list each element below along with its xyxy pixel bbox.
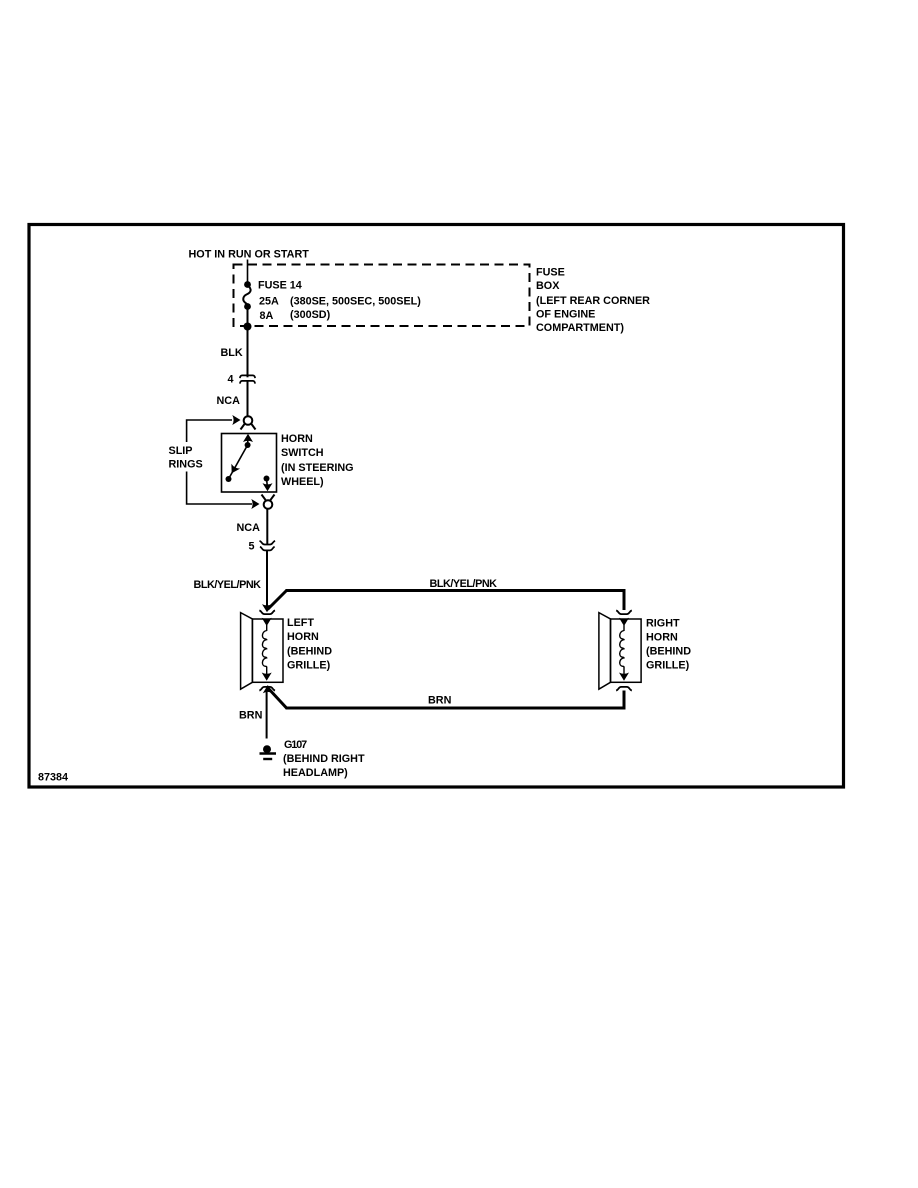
svg-text:BLK: BLK — [221, 347, 243, 359]
svg-text:GRILLE): GRILLE) — [287, 660, 331, 672]
svg-text:COMPARTMENT): COMPARTMENT) — [536, 322, 624, 334]
svg-text:OF ENGINE: OF ENGINE — [536, 309, 595, 321]
svg-text:HORN: HORN — [287, 631, 319, 643]
svg-text:(BEHIND: (BEHIND — [287, 646, 332, 658]
svg-text:25A: 25A — [259, 296, 279, 308]
svg-text:SLIP: SLIP — [169, 445, 193, 457]
svg-text:(LEFT REAR CORNER: (LEFT REAR CORNER — [536, 295, 650, 307]
svg-text:RINGS: RINGS — [169, 459, 203, 471]
svg-text:BRN: BRN — [428, 695, 452, 707]
svg-text:8A: 8A — [260, 310, 274, 322]
svg-text:WHEEL): WHEEL) — [281, 476, 324, 488]
svg-text:LEFT: LEFT — [287, 617, 314, 629]
svg-text:G107: G107 — [284, 739, 307, 751]
svg-text:FUSE: FUSE — [536, 267, 565, 279]
svg-text:BLK/YEL/PNK: BLK/YEL/PNK — [430, 578, 498, 590]
svg-text:BOX: BOX — [536, 280, 560, 292]
svg-text:FUSE 14: FUSE 14 — [258, 280, 302, 292]
svg-text:NCA: NCA — [217, 395, 241, 407]
svg-text:(IN STEERING: (IN STEERING — [281, 462, 354, 474]
svg-text:(380SE, 500SEC, 500SEL): (380SE, 500SEC, 500SEL) — [290, 296, 421, 308]
svg-text:HEADLAMP): HEADLAMP) — [283, 767, 348, 779]
svg-text:RIGHT: RIGHT — [646, 618, 680, 630]
svg-text:BLK/YEL/PNK: BLK/YEL/PNK — [194, 579, 262, 591]
svg-text:87384: 87384 — [38, 772, 68, 784]
svg-text:(300SD): (300SD) — [290, 309, 331, 321]
svg-text:5: 5 — [249, 541, 255, 553]
svg-text:HORN: HORN — [281, 433, 313, 445]
svg-text:(BEHIND: (BEHIND — [646, 646, 691, 658]
svg-text:HOT IN RUN OR START: HOT IN RUN OR START — [189, 249, 310, 261]
svg-text:NCA: NCA — [237, 522, 261, 534]
svg-text:SWITCH: SWITCH — [281, 447, 324, 459]
svg-text:(BEHIND RIGHT: (BEHIND RIGHT — [283, 753, 365, 765]
svg-text:GRILLE): GRILLE) — [646, 660, 690, 672]
svg-text:BRN: BRN — [239, 710, 263, 722]
svg-text:4: 4 — [228, 374, 234, 386]
svg-text:HORN: HORN — [646, 632, 678, 644]
